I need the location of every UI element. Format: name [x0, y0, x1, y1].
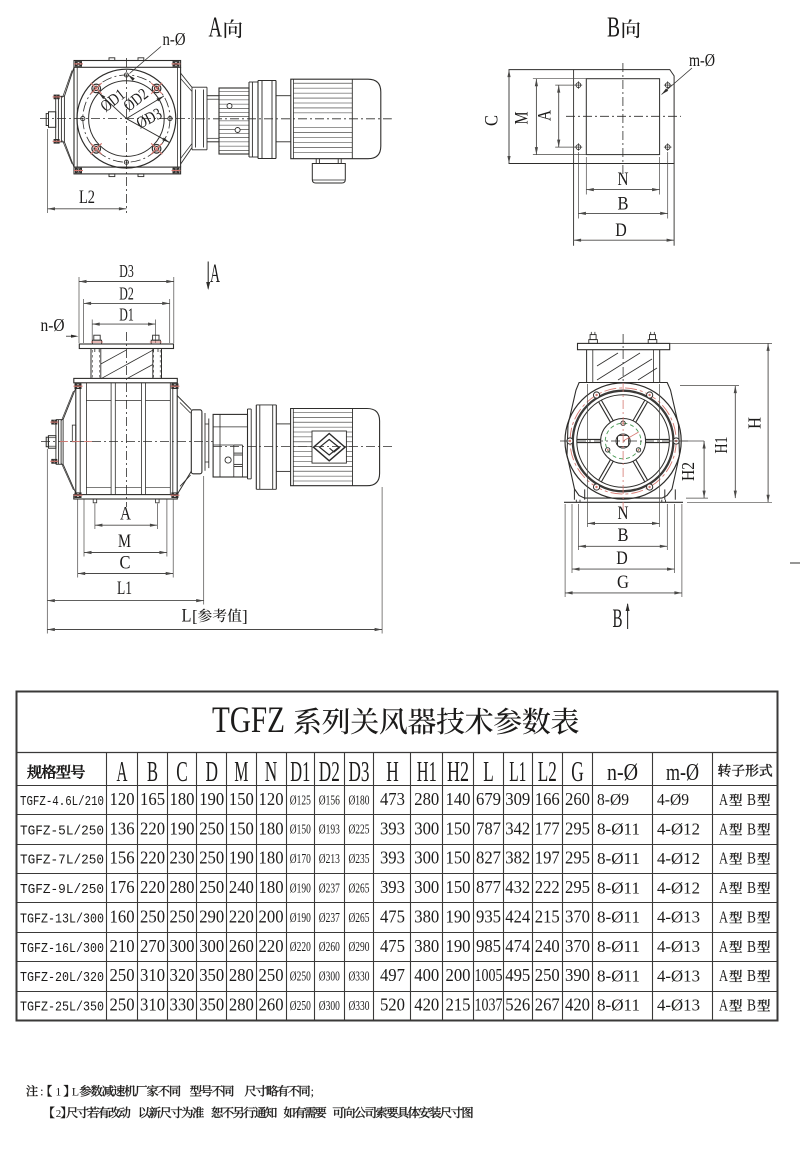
svg-text:165: 165	[140, 789, 165, 809]
svg-text:475: 475	[380, 906, 405, 926]
svg-text:8-Ø11: 8-Ø11	[597, 849, 640, 868]
svg-text:Ø290: Ø290	[348, 939, 369, 954]
svg-text:267: 267	[535, 995, 560, 1015]
svg-text:Ø235: Ø235	[348, 851, 369, 866]
svg-text:350: 350	[199, 995, 224, 1015]
svg-text:230: 230	[170, 848, 195, 868]
svg-text:TGFZ-25L/350: TGFZ-25L/350	[20, 1001, 104, 1016]
svg-text:200: 200	[446, 965, 471, 985]
svg-text:m-Ø: m-Ø	[666, 760, 699, 786]
svg-text:935: 935	[476, 906, 501, 926]
svg-text:B: B	[747, 907, 756, 926]
svg-text:475: 475	[380, 936, 405, 956]
svg-text:300: 300	[414, 818, 439, 838]
svg-text:220: 220	[140, 848, 165, 868]
svg-text:4-Ø12: 4-Ø12	[657, 820, 700, 839]
svg-text:Ø330: Ø330	[348, 998, 369, 1013]
svg-text:176: 176	[110, 877, 135, 897]
svg-text:787: 787	[476, 818, 501, 838]
svg-text:Ø180: Ø180	[348, 792, 369, 807]
svg-text:210: 210	[110, 936, 135, 956]
svg-text:A: A	[719, 878, 728, 897]
svg-text:190: 190	[199, 789, 224, 809]
svg-text:140: 140	[446, 789, 471, 809]
svg-text:8-Ø11: 8-Ø11	[597, 966, 640, 985]
svg-text:250: 250	[535, 965, 560, 985]
svg-text:295: 295	[565, 848, 590, 868]
svg-text:Ø260: Ø260	[319, 939, 340, 954]
svg-text:8-Ø11: 8-Ø11	[597, 820, 640, 839]
svg-text:Ø330: Ø330	[348, 969, 369, 984]
svg-text:H2: H2	[678, 462, 698, 481]
svg-text:393: 393	[380, 818, 405, 838]
svg-text:4-Ø13: 4-Ø13	[657, 908, 700, 927]
svg-text:270: 270	[140, 936, 165, 956]
svg-text:Ø265: Ø265	[348, 880, 369, 895]
svg-text:166: 166	[535, 789, 560, 809]
svg-text:TGFZ-4.6L/210: TGFZ-4.6L/210	[20, 795, 104, 810]
svg-text:L1: L1	[509, 757, 526, 788]
svg-text:8-Ø9: 8-Ø9	[597, 790, 629, 809]
svg-text:280: 280	[229, 965, 254, 985]
svg-text:L2: L2	[538, 757, 557, 788]
svg-text:4-Ø13: 4-Ø13	[657, 966, 700, 985]
svg-text:827: 827	[476, 848, 501, 868]
svg-text:432: 432	[505, 877, 530, 897]
svg-text:2: 2	[56, 1108, 62, 1120]
svg-text:8-Ø11: 8-Ø11	[597, 878, 640, 897]
svg-text:N: N	[265, 757, 278, 788]
svg-text:B: B	[607, 13, 620, 44]
svg-text:]: ]	[242, 607, 248, 626]
svg-text:150: 150	[229, 818, 254, 838]
svg-text:290: 290	[199, 906, 224, 926]
svg-text:A: A	[209, 13, 223, 44]
svg-text:180: 180	[170, 789, 195, 809]
svg-text:260: 260	[229, 936, 254, 956]
svg-text:[: [	[192, 607, 198, 626]
svg-text:4-Ø12: 4-Ø12	[657, 849, 700, 868]
svg-text:250: 250	[259, 965, 284, 985]
svg-text:295: 295	[565, 877, 590, 897]
svg-text:D1: D1	[119, 305, 134, 325]
svg-text:300: 300	[199, 936, 224, 956]
svg-text:D3: D3	[348, 757, 369, 788]
svg-text:A: A	[719, 937, 728, 956]
svg-text:A: A	[117, 757, 128, 788]
svg-text:;: ;	[311, 1084, 315, 1099]
svg-text:B: B	[747, 849, 756, 868]
svg-text:D: D	[205, 757, 218, 788]
svg-text:Ø125: Ø125	[290, 792, 311, 807]
svg-text:B: B	[618, 525, 629, 546]
svg-text:250: 250	[140, 906, 165, 926]
svg-text:TGFZ-16L/300: TGFZ-16L/300	[20, 942, 104, 957]
svg-text:220: 220	[259, 936, 284, 956]
svg-text:8-Ø11: 8-Ø11	[597, 937, 640, 956]
svg-text:220: 220	[229, 906, 254, 926]
svg-text:8-Ø11: 8-Ø11	[597, 908, 640, 927]
svg-text:TGFZ-9L/250: TGFZ-9L/250	[20, 883, 104, 898]
svg-text:H2: H2	[447, 757, 469, 788]
svg-text:220: 220	[140, 818, 165, 838]
svg-text:B: B	[147, 757, 158, 788]
svg-text:Ø193: Ø193	[319, 822, 340, 837]
svg-text:877: 877	[476, 877, 501, 897]
svg-text:H1: H1	[417, 757, 437, 788]
svg-text:120: 120	[110, 789, 135, 809]
svg-text:390: 390	[565, 965, 590, 985]
svg-text:320: 320	[170, 965, 195, 985]
svg-text:M: M	[118, 531, 131, 552]
svg-text:8-Ø11: 8-Ø11	[597, 996, 640, 1015]
svg-text:Ø237: Ø237	[319, 880, 340, 895]
svg-text:220: 220	[140, 877, 165, 897]
svg-text:Ø237: Ø237	[319, 910, 340, 925]
svg-text:260: 260	[259, 995, 284, 1015]
svg-text:250: 250	[199, 877, 224, 897]
svg-text:240: 240	[535, 936, 560, 956]
svg-text:473: 473	[380, 789, 405, 809]
svg-text:420: 420	[414, 995, 439, 1015]
svg-text:A: A	[719, 996, 728, 1015]
svg-text:m-Ø: m-Ø	[689, 50, 715, 70]
svg-text:A: A	[120, 504, 131, 525]
svg-text:150: 150	[446, 818, 471, 838]
svg-text:424: 424	[505, 906, 530, 926]
svg-text:985: 985	[476, 936, 501, 956]
svg-text:120: 120	[259, 789, 284, 809]
svg-text:280: 280	[229, 995, 254, 1015]
svg-text:150: 150	[229, 789, 254, 809]
svg-text:1: 1	[56, 1087, 62, 1099]
svg-text:H1: H1	[711, 437, 731, 454]
svg-text:180: 180	[259, 848, 284, 868]
svg-text:150: 150	[446, 848, 471, 868]
svg-text:280: 280	[414, 789, 439, 809]
svg-text:A: A	[719, 907, 728, 926]
svg-text:190: 190	[229, 848, 254, 868]
svg-text:250: 250	[110, 965, 135, 985]
svg-text:H: H	[386, 757, 399, 788]
svg-text:L2: L2	[79, 187, 95, 208]
svg-text:TGFZ-7L/250: TGFZ-7L/250	[20, 854, 104, 869]
svg-text:370: 370	[565, 906, 590, 926]
svg-text:Ø225: Ø225	[348, 822, 369, 837]
svg-text:520: 520	[380, 995, 405, 1015]
svg-text:310: 310	[140, 995, 165, 1015]
svg-text:D2: D2	[119, 284, 134, 304]
svg-text:B: B	[747, 937, 756, 956]
svg-text:A: A	[719, 966, 728, 985]
svg-text:4-Ø12: 4-Ø12	[657, 878, 700, 897]
svg-text:330: 330	[170, 995, 195, 1015]
svg-text:156: 156	[110, 848, 135, 868]
svg-text:L: L	[483, 757, 494, 788]
svg-text:295: 295	[565, 818, 590, 838]
svg-text:342: 342	[505, 818, 530, 838]
svg-text::: :	[40, 1084, 44, 1099]
svg-text:L: L	[182, 606, 192, 627]
svg-text:TGFZ-13L/300: TGFZ-13L/300	[20, 912, 104, 927]
svg-text:393: 393	[380, 848, 405, 868]
svg-text:495: 495	[505, 965, 530, 985]
svg-text:382: 382	[505, 848, 530, 868]
svg-text:350: 350	[199, 965, 224, 985]
svg-text:G: G	[571, 757, 584, 788]
svg-text:Ø265: Ø265	[348, 910, 369, 925]
svg-text:300: 300	[170, 936, 195, 956]
svg-text:300: 300	[414, 877, 439, 897]
svg-text:Ø190: Ø190	[290, 910, 311, 925]
svg-text:TGFZ-5L/250: TGFZ-5L/250	[20, 824, 104, 839]
svg-text:Ø150: Ø150	[290, 822, 311, 837]
svg-text:n-Ø: n-Ø	[607, 760, 638, 786]
svg-text:L1: L1	[117, 578, 132, 599]
svg-text:1005: 1005	[475, 965, 503, 985]
svg-text:1037: 1037	[475, 995, 503, 1015]
svg-text:497: 497	[380, 965, 405, 985]
svg-text:4-Ø13: 4-Ø13	[657, 937, 700, 956]
svg-text:n-Ø: n-Ø	[41, 315, 65, 335]
svg-text:D: D	[616, 548, 628, 569]
svg-text:C: C	[120, 553, 131, 574]
svg-text:215: 215	[446, 995, 471, 1015]
svg-text:177: 177	[535, 818, 560, 838]
svg-text:215: 215	[535, 906, 560, 926]
svg-text:Ø250: Ø250	[290, 969, 311, 984]
svg-text:250: 250	[170, 906, 195, 926]
svg-text:474: 474	[505, 936, 530, 956]
svg-text:180: 180	[259, 818, 284, 838]
svg-text:D2: D2	[319, 757, 340, 788]
svg-text:Ø300: Ø300	[319, 969, 340, 984]
svg-text:TGFZ-20L/320: TGFZ-20L/320	[20, 971, 104, 986]
svg-text:D: D	[615, 220, 627, 241]
svg-text:240: 240	[229, 877, 254, 897]
svg-text:M: M	[234, 757, 248, 788]
svg-text:309: 309	[505, 789, 530, 809]
svg-text:n-Ø: n-Ø	[163, 29, 186, 49]
svg-text:380: 380	[414, 906, 439, 926]
svg-text:Ø156: Ø156	[319, 792, 340, 807]
svg-text:4-Ø13: 4-Ø13	[657, 996, 700, 1015]
svg-text:150: 150	[446, 877, 471, 897]
svg-text:400: 400	[414, 965, 439, 985]
svg-text:250: 250	[199, 818, 224, 838]
svg-text:TGFZ: TGFZ	[212, 700, 285, 741]
svg-text:200: 200	[259, 906, 284, 926]
svg-text:393: 393	[380, 877, 405, 897]
svg-text:A: A	[719, 790, 728, 809]
svg-text:190: 190	[446, 936, 471, 956]
svg-text:250: 250	[199, 848, 224, 868]
svg-text:180: 180	[259, 877, 284, 897]
svg-text:Ø170: Ø170	[290, 851, 311, 866]
svg-text:C: C	[482, 115, 503, 126]
svg-text:300: 300	[414, 848, 439, 868]
svg-text:B: B	[747, 790, 756, 809]
svg-text:197: 197	[535, 848, 560, 868]
svg-text:420: 420	[565, 995, 590, 1015]
svg-text:310: 310	[140, 965, 165, 985]
svg-text:190: 190	[446, 906, 471, 926]
svg-text:380: 380	[414, 936, 439, 956]
svg-text:N: N	[618, 503, 629, 524]
svg-text:280: 280	[170, 877, 195, 897]
svg-text:Ø300: Ø300	[319, 998, 340, 1013]
svg-text:160: 160	[110, 906, 135, 926]
svg-text:B: B	[747, 966, 756, 985]
svg-text:B: B	[613, 604, 623, 633]
svg-text:250: 250	[110, 995, 135, 1015]
svg-text:N: N	[618, 169, 629, 190]
svg-text:136: 136	[110, 818, 135, 838]
svg-text:Ø190: Ø190	[290, 880, 311, 895]
svg-text:222: 222	[535, 877, 560, 897]
svg-text:C: C	[176, 757, 188, 788]
svg-text:260: 260	[565, 789, 590, 809]
svg-text:A: A	[719, 849, 728, 868]
svg-text:L: L	[72, 1085, 79, 1099]
svg-text:370: 370	[565, 936, 590, 956]
svg-text:B: B	[747, 878, 756, 897]
svg-text:Ø220: Ø220	[290, 939, 311, 954]
svg-text:Ø213: Ø213	[319, 851, 340, 866]
svg-text:679: 679	[476, 789, 501, 809]
svg-text:G: G	[617, 572, 629, 593]
svg-text:B: B	[618, 194, 629, 215]
svg-text:D3: D3	[119, 261, 134, 281]
svg-text:A: A	[535, 110, 556, 121]
svg-text:526: 526	[505, 995, 530, 1015]
svg-text:M: M	[512, 111, 533, 124]
svg-text:B: B	[747, 819, 756, 838]
svg-text:B: B	[747, 996, 756, 1015]
svg-text:4-Ø9: 4-Ø9	[657, 790, 689, 809]
svg-text:H: H	[745, 417, 765, 429]
svg-text:Ø250: Ø250	[290, 998, 311, 1013]
svg-text:A: A	[210, 259, 220, 288]
svg-text:D1: D1	[290, 757, 310, 788]
svg-text:190: 190	[170, 818, 195, 838]
svg-text:A: A	[719, 819, 728, 838]
